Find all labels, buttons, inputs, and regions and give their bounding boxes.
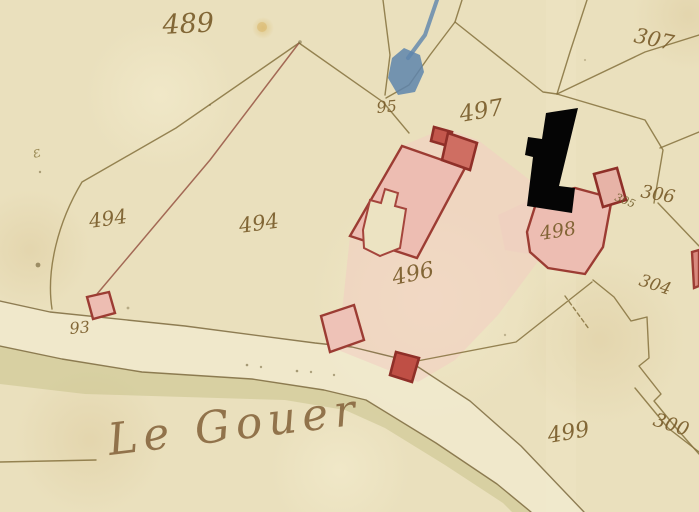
cadastral-map-canvas[interactable]: 4893079549730630549449449849630493499300… xyxy=(0,0,699,512)
map-image: 4893079549730630549449449849630493499300… xyxy=(0,0,699,512)
building-south-annex xyxy=(390,352,419,382)
parcel-label-95: 95 xyxy=(376,96,398,117)
building-93 xyxy=(87,292,115,319)
building-east-fragment xyxy=(692,250,699,288)
parcel-label-93: 93 xyxy=(69,317,91,338)
parcel-label-489: 489 xyxy=(161,7,215,41)
